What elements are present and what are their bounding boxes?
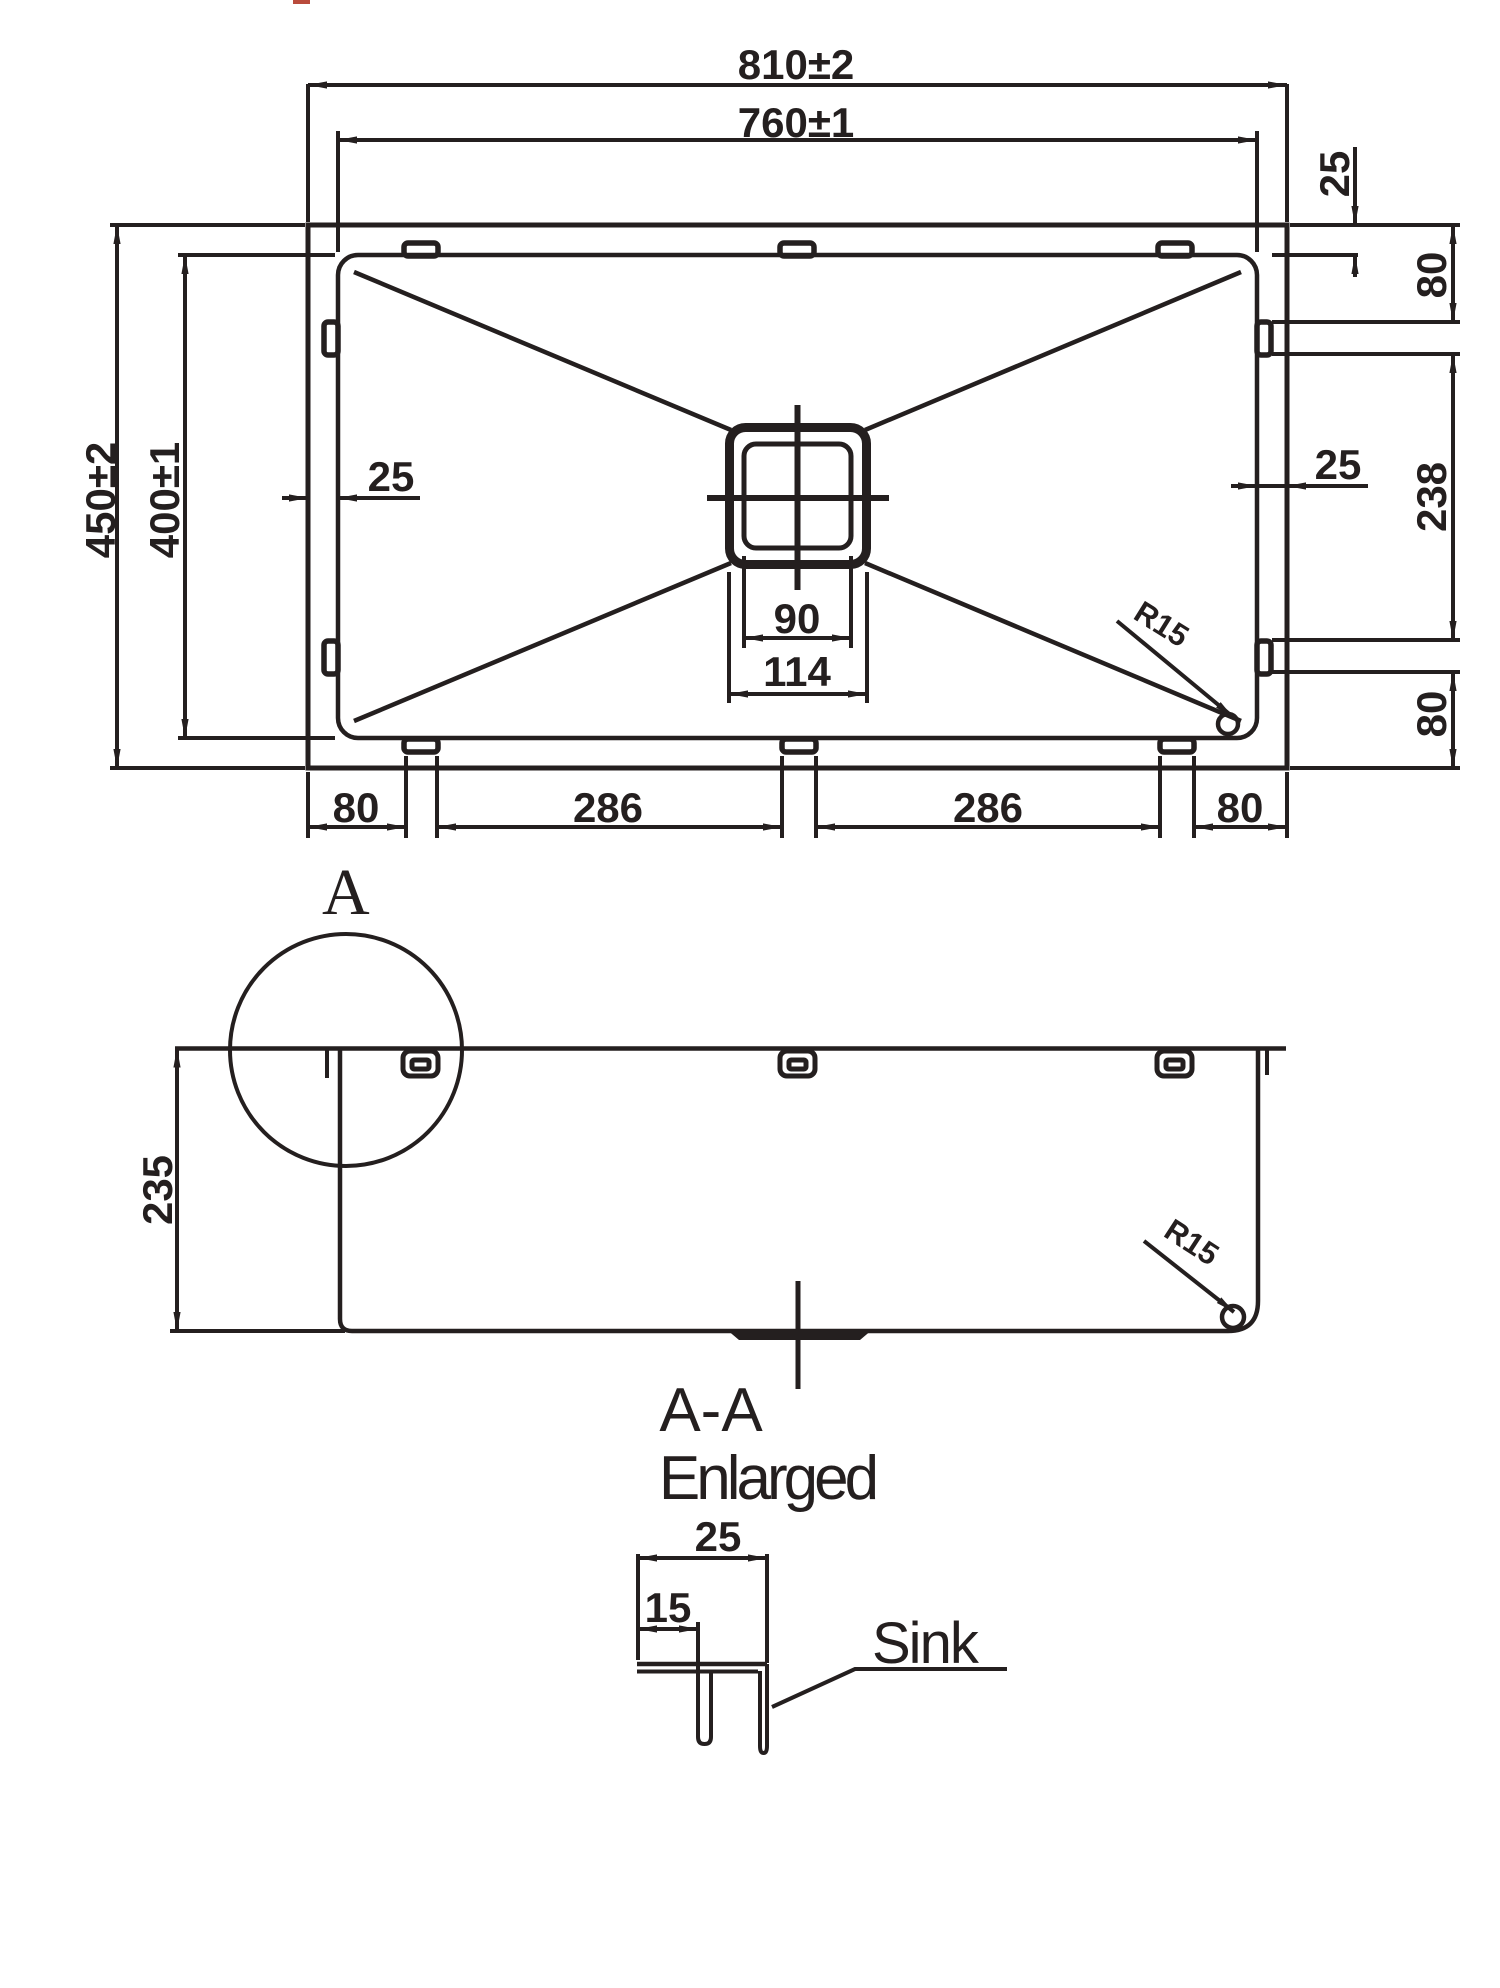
svg-text:25: 25 — [368, 453, 415, 500]
svg-text:80: 80 — [333, 784, 380, 831]
svg-text:286: 286 — [573, 784, 643, 831]
svg-text:400±1: 400±1 — [141, 442, 188, 558]
svg-text:15: 15 — [645, 1584, 692, 1631]
svg-text:450±2: 450±2 — [77, 442, 124, 558]
svg-text:114: 114 — [763, 648, 831, 695]
svg-text:810±2: 810±2 — [738, 41, 854, 88]
svg-text:A-A: A-A — [659, 1376, 763, 1445]
svg-text:25: 25 — [1315, 441, 1362, 488]
svg-text:238: 238 — [1408, 462, 1455, 532]
svg-text:25: 25 — [695, 1513, 742, 1560]
svg-text:90: 90 — [774, 595, 821, 642]
svg-text:25: 25 — [1311, 151, 1358, 198]
svg-text:A: A — [322, 856, 370, 929]
svg-text:760±1: 760±1 — [738, 99, 854, 146]
svg-text:80: 80 — [1408, 252, 1455, 299]
svg-text:80: 80 — [1217, 784, 1264, 831]
svg-text:Enlarged: Enlarged — [659, 1444, 876, 1513]
svg-text:235: 235 — [134, 1155, 181, 1225]
svg-text:80: 80 — [1408, 691, 1455, 738]
svg-text:Sink: Sink — [872, 1611, 980, 1676]
svg-text:286: 286 — [953, 784, 1023, 831]
